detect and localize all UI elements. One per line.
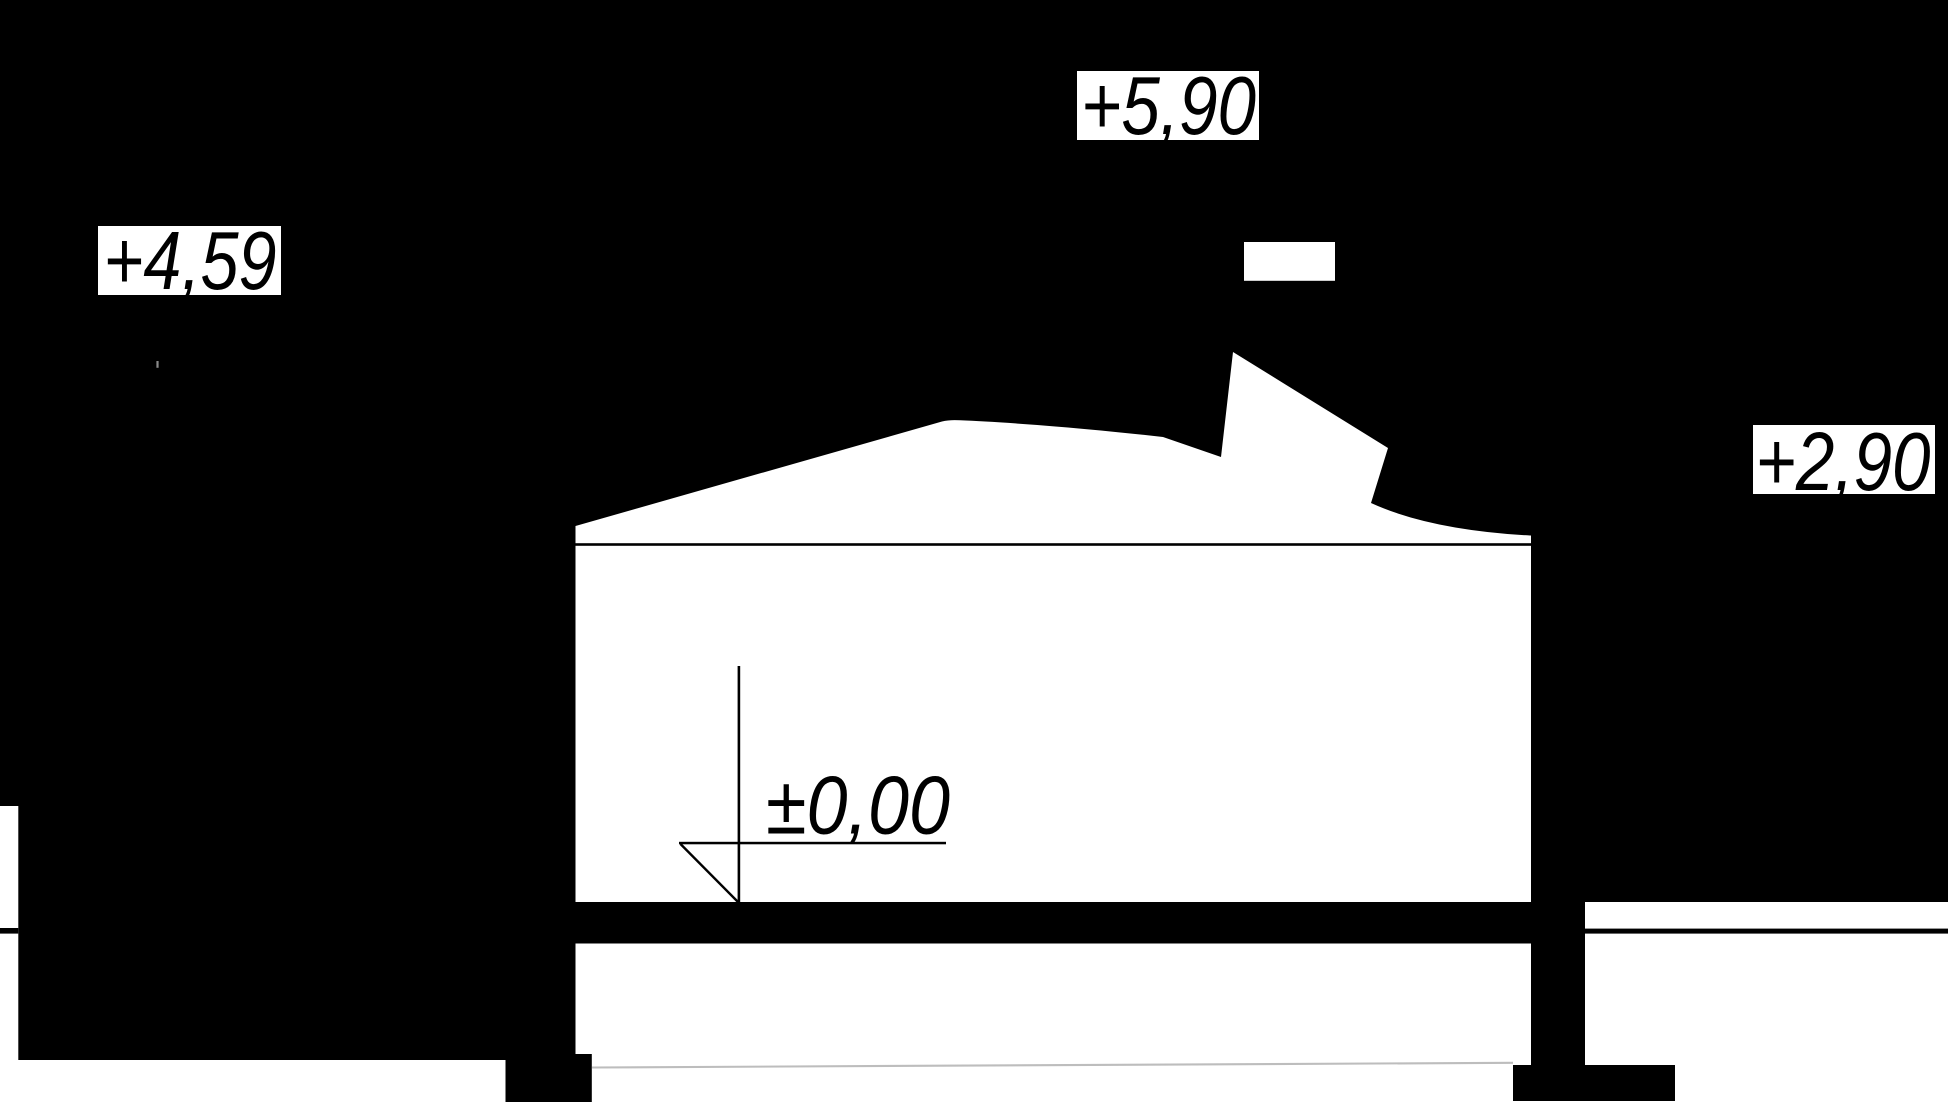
- svg-text:+2,90: +2,90: [1756, 415, 1931, 508]
- svg-text:+5,90: +5,90: [1081, 59, 1256, 152]
- svg-text:+4,59: +4,59: [104, 214, 277, 307]
- svg-text:±0,00: ±0,00: [766, 759, 950, 852]
